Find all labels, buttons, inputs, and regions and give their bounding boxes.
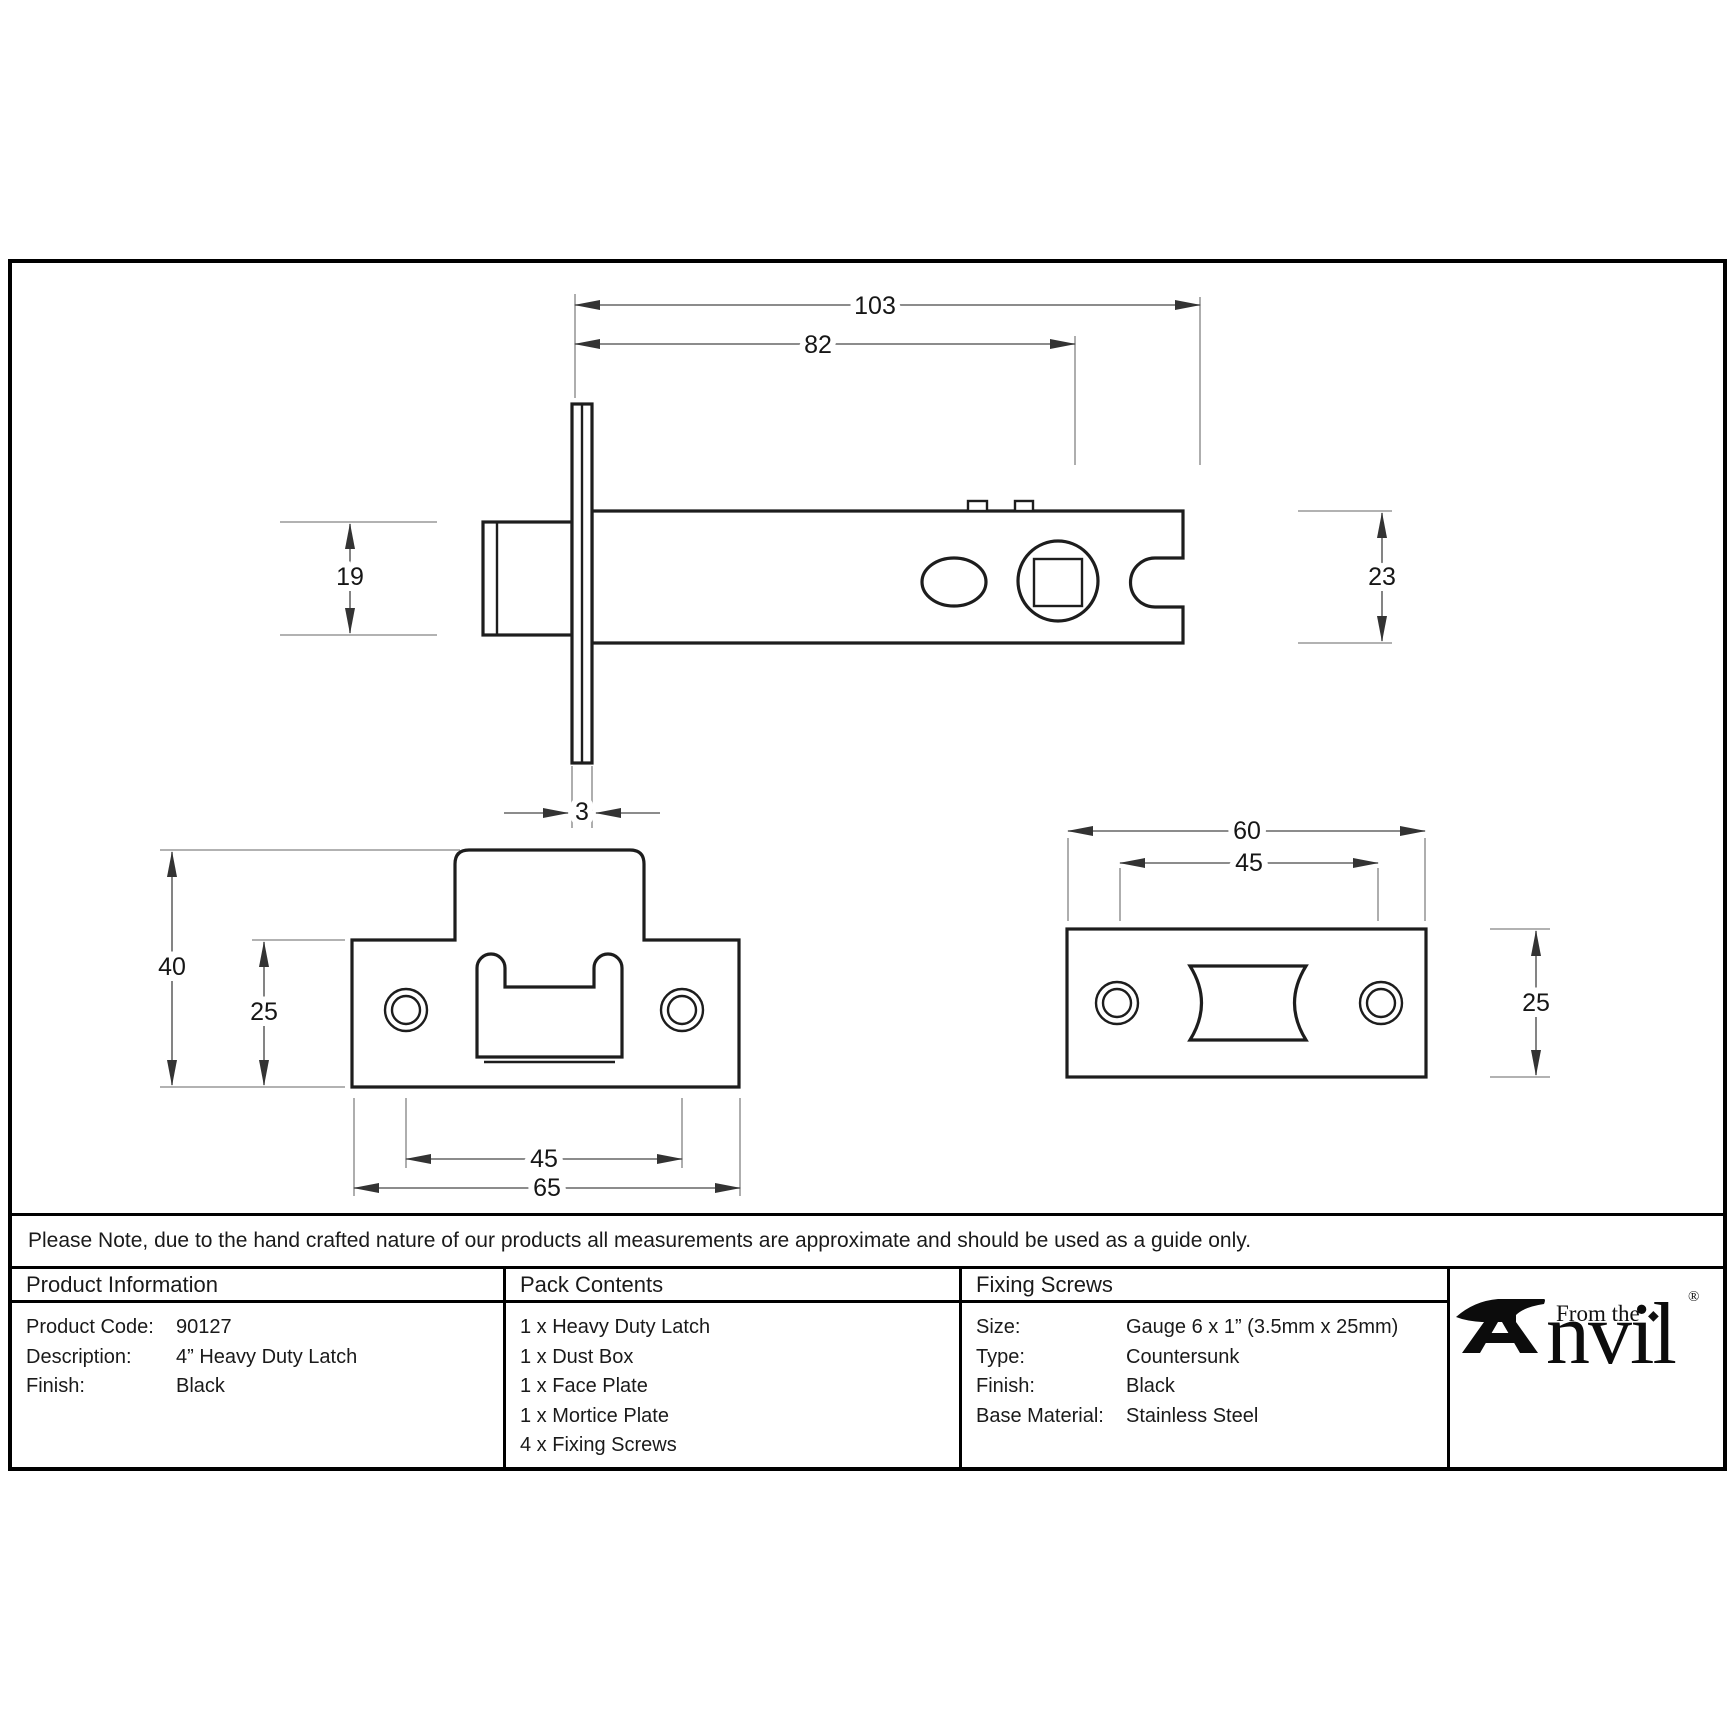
from-the-anvil-logo: nvil From the ◆ ® xyxy=(1450,1269,1723,1467)
top-tab-1 xyxy=(968,501,987,511)
measurement-note-row: Please Note, due to the hand crafted nat… xyxy=(12,1213,1723,1266)
finish-label: Finish: xyxy=(26,1372,176,1402)
dim-plate-thickness: 3 xyxy=(575,798,589,826)
top-tab-2 xyxy=(1015,501,1033,511)
registered-trademark-icon: ® xyxy=(1688,1289,1699,1306)
latch-parts xyxy=(352,404,1426,1087)
pack-item: 1 x Mortice Plate xyxy=(520,1402,959,1432)
base-material-row: Base Material: Stainless Steel xyxy=(976,1402,1447,1432)
face-plate-side-view xyxy=(572,404,592,763)
product-table: Product Information Product Code: 90127 … xyxy=(12,1266,1723,1467)
screw-size-value: Gauge 6 x 1” (3.5mm x 25mm) xyxy=(1126,1313,1398,1343)
product-information-header: Product Information xyxy=(12,1269,503,1303)
screw-size-row: Size: Gauge 6 x 1” (3.5mm x 25mm) xyxy=(976,1313,1447,1343)
spec-sheet-frame: 103 82 19 23 3 40 25 45 65 60 45 25 Plea… xyxy=(8,259,1727,1471)
measurement-note: Please Note, due to the hand crafted nat… xyxy=(28,1229,1251,1253)
pack-contents-header: Pack Contents xyxy=(506,1269,959,1303)
description-row: Description: 4” Heavy Duty Latch xyxy=(26,1343,503,1373)
screw-finish-label: Finish: xyxy=(976,1372,1126,1402)
mortice-plate-view xyxy=(1067,929,1426,1077)
pack-item: 1 x Heavy Duty Latch xyxy=(520,1313,959,1343)
screw-type-value: Countersunk xyxy=(1126,1343,1239,1373)
face-plate-front-view xyxy=(352,850,739,1087)
dim-bolt-height: 19 xyxy=(336,563,364,591)
product-code-value: 90127 xyxy=(176,1313,232,1343)
diamond-icon: ◆ xyxy=(1648,1307,1659,1324)
dim-faceplate-width: 65 xyxy=(533,1174,561,1202)
finish-row: Finish: Black xyxy=(26,1372,503,1402)
screw-finish-value: Black xyxy=(1126,1372,1175,1402)
fixing-screws-header: Fixing Screws xyxy=(962,1269,1447,1303)
anvil-icon xyxy=(1454,1295,1546,1353)
pack-item: 4 x Fixing Screws xyxy=(520,1431,959,1461)
pack-contents-column: Pack Contents 1 x Heavy Duty Latch 1 x D… xyxy=(503,1269,959,1467)
base-material-label: Base Material: xyxy=(976,1402,1126,1432)
product-information-column: Product Information Product Code: 90127 … xyxy=(12,1269,503,1467)
pack-item: 1 x Dust Box xyxy=(520,1343,959,1373)
base-material-value: Stainless Steel xyxy=(1126,1402,1258,1432)
description-value: 4” Heavy Duty Latch xyxy=(176,1343,357,1373)
dim-mortice-width: 60 xyxy=(1233,817,1261,845)
screw-size-label: Size: xyxy=(976,1313,1126,1343)
strike-opening xyxy=(1190,966,1306,1040)
finish-value: Black xyxy=(176,1372,225,1402)
dim-case-length: 82 xyxy=(804,331,832,359)
logo-prefix: From the xyxy=(1556,1301,1640,1327)
description-label: Description: xyxy=(26,1343,176,1373)
screw-finish-row: Finish: Black xyxy=(976,1372,1447,1402)
screw-type-row: Type: Countersunk xyxy=(976,1343,1447,1373)
dim-faceplate-screw-spacing: 45 xyxy=(530,1145,558,1173)
brand-column: nvil From the ◆ ® xyxy=(1447,1269,1723,1467)
latch-case-side-view xyxy=(592,501,1183,643)
screw-type-label: Type: xyxy=(976,1343,1126,1373)
technical-drawing: 103 82 19 23 3 40 25 45 65 60 45 25 xyxy=(12,263,1723,1213)
latch-bolt-side-view xyxy=(483,522,572,635)
product-code-label: Product Code: xyxy=(26,1313,176,1343)
dim-mortice-height: 25 xyxy=(1522,989,1550,1017)
product-code-row: Product Code: 90127 xyxy=(26,1313,503,1343)
fixing-screws-column: Fixing Screws Size: Gauge 6 x 1” (3.5mm … xyxy=(959,1269,1447,1467)
dim-case-height: 23 xyxy=(1368,563,1396,591)
dim-mortice-screw-spacing: 45 xyxy=(1235,849,1263,877)
dim-faceplate-overall-height: 40 xyxy=(158,953,186,981)
dim-faceplate-plate-height: 25 xyxy=(250,998,278,1026)
pack-item: 1 x Face Plate xyxy=(520,1372,959,1402)
spec-sheet-page: 103 82 19 23 3 40 25 45 65 60 45 25 Plea… xyxy=(0,0,1735,1735)
dim-total-length: 103 xyxy=(854,292,896,320)
